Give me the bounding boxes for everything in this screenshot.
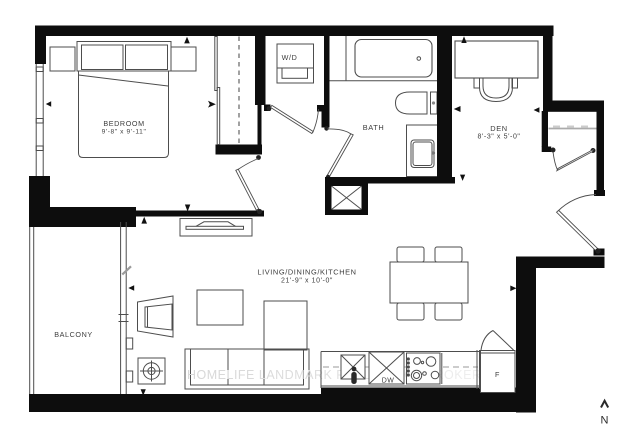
svg-text:F: F xyxy=(495,370,500,379)
svg-text:DEN: DEN xyxy=(490,124,507,133)
svg-text:LIVING/DINING/KITCHEN: LIVING/DINING/KITCHEN xyxy=(257,268,356,277)
svg-text:BATH: BATH xyxy=(363,123,385,132)
svg-text:BALCONY: BALCONY xyxy=(54,330,93,339)
svg-text:N: N xyxy=(601,415,609,427)
svg-text:BEDROOM: BEDROOM xyxy=(103,119,144,128)
svg-text:W/D: W/D xyxy=(282,53,298,62)
svg-text:21'-9" x 10'-0": 21'-9" x 10'-0" xyxy=(281,278,333,285)
svg-text:8'-3" x 5'-0": 8'-3" x 5'-0" xyxy=(477,134,520,141)
svg-text:DW: DW xyxy=(382,378,394,385)
svg-text:9'-8" x 9'-11": 9'-8" x 9'-11" xyxy=(102,129,147,136)
